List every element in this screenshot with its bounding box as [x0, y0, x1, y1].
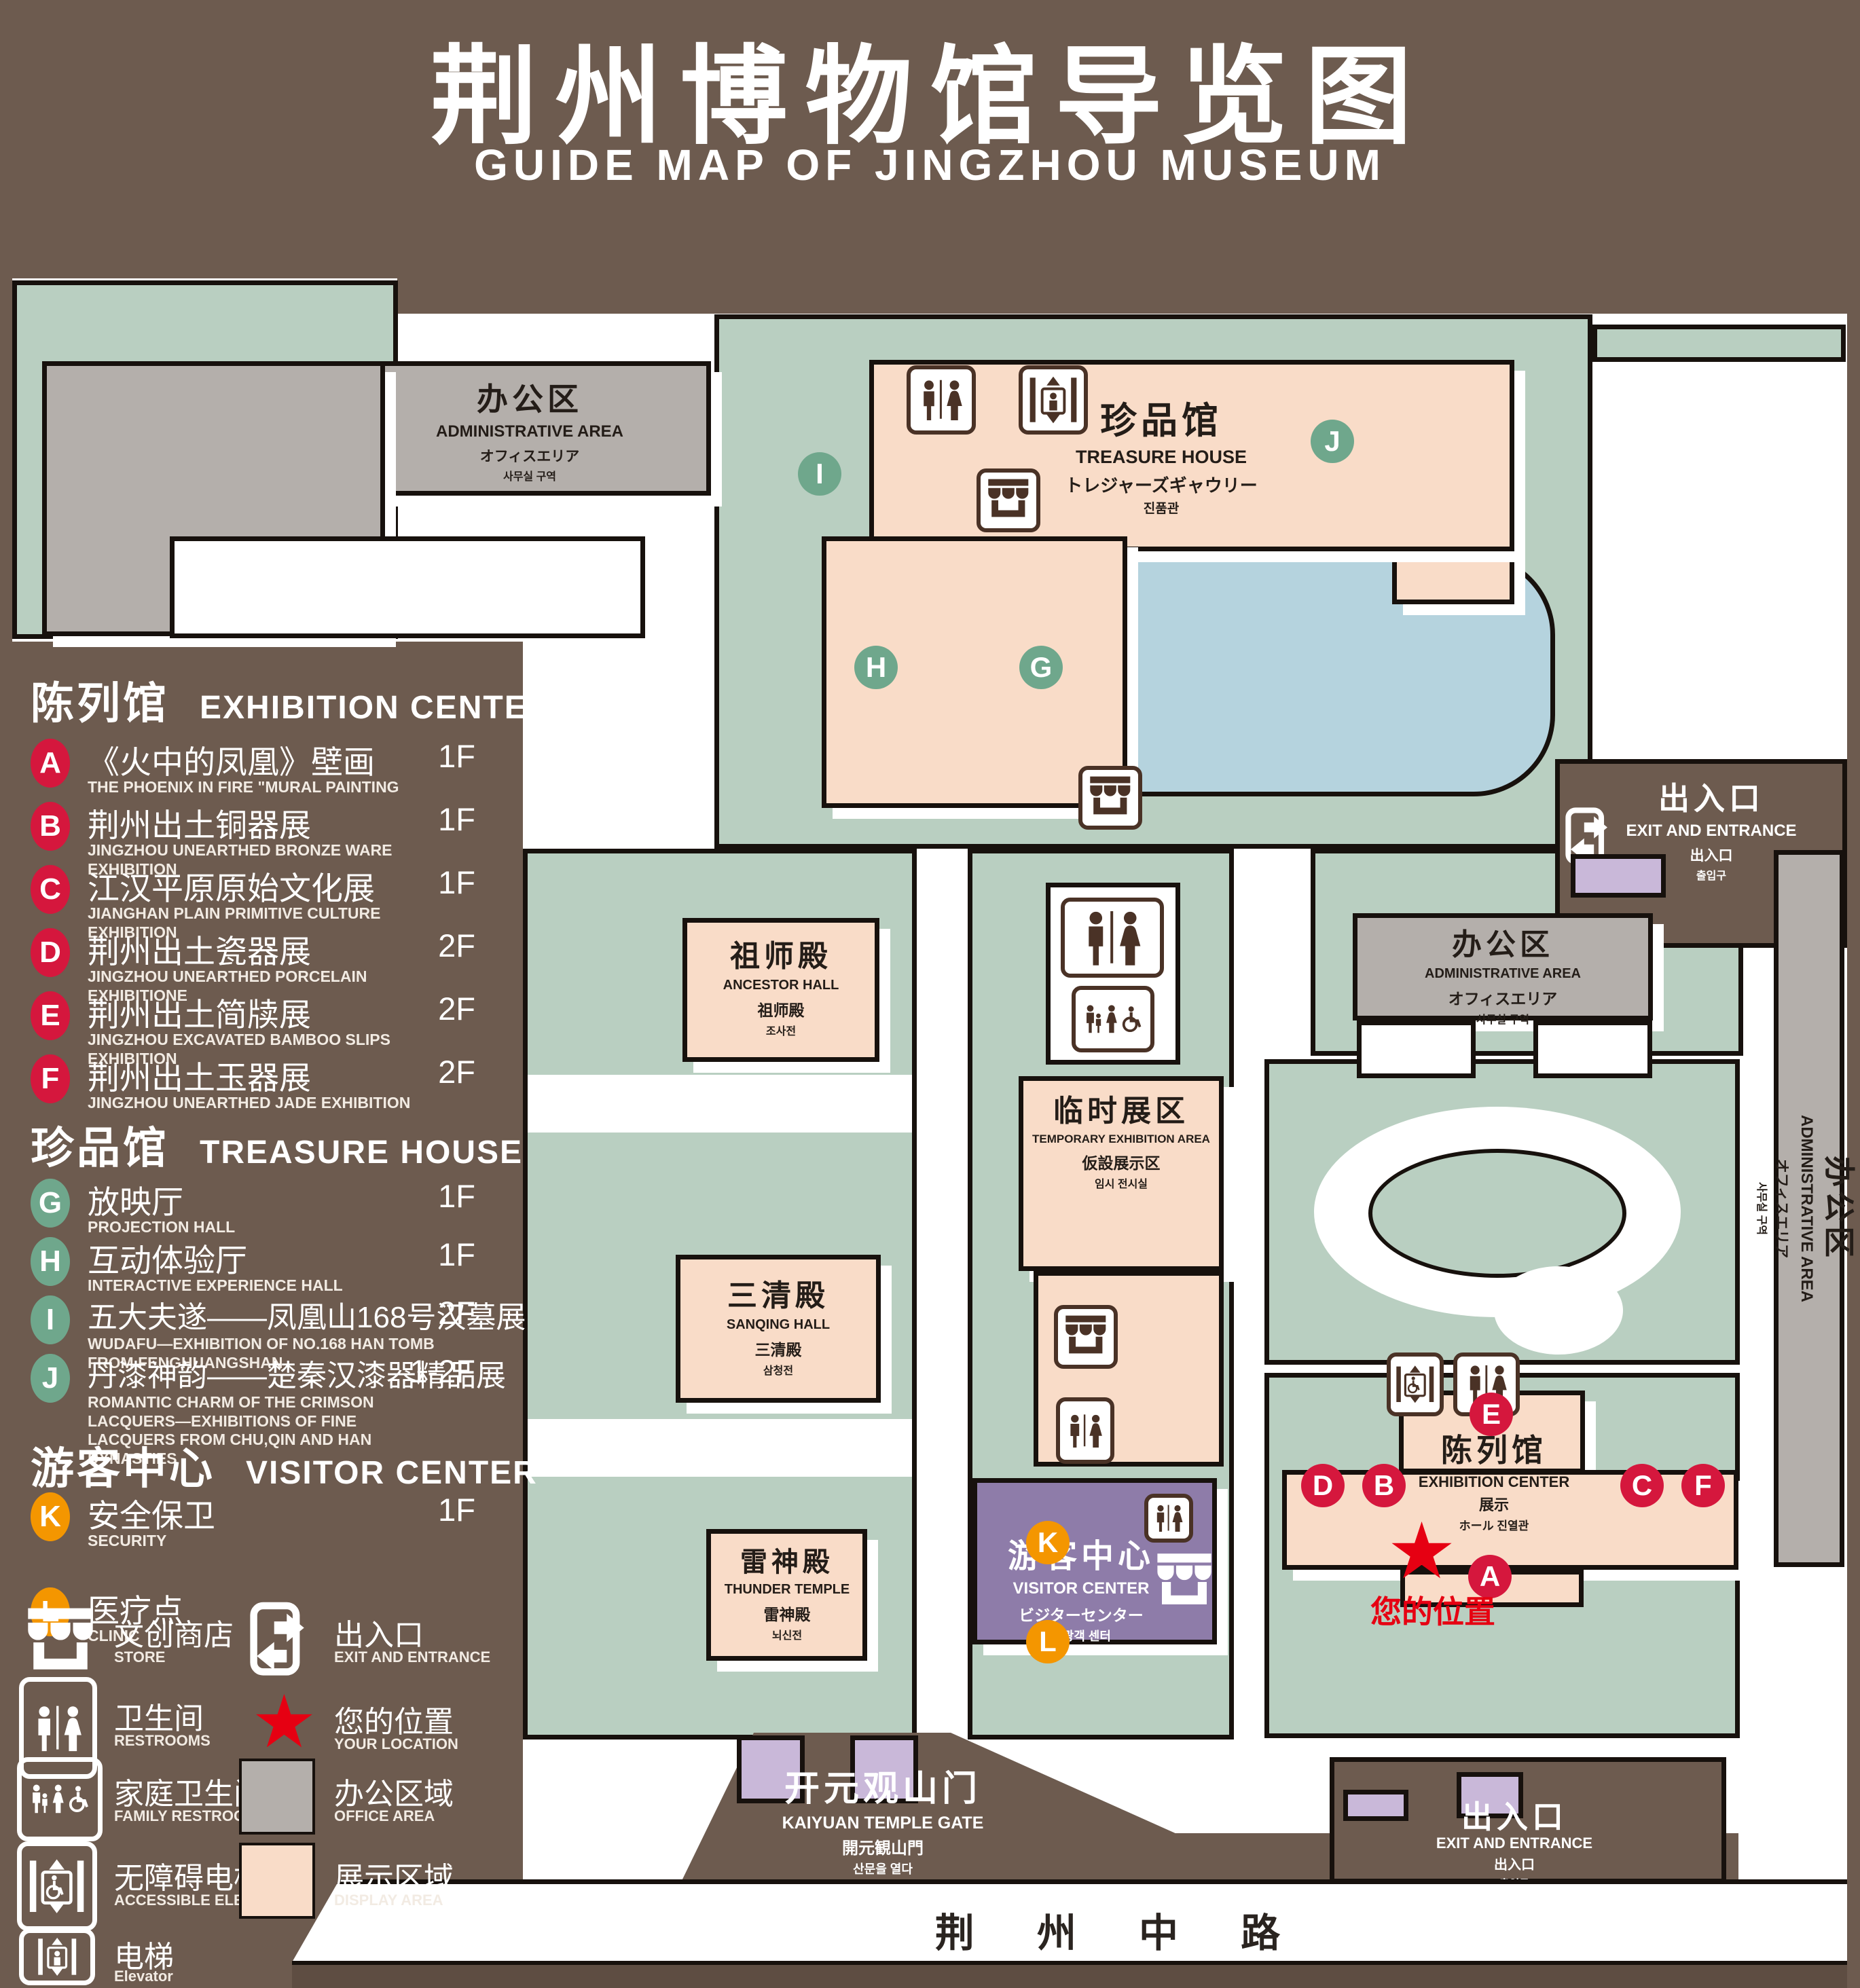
badge-K: K	[1026, 1521, 1070, 1564]
legend-item-J: J 丹漆神韵——楚秦汉漆器精品展 ROMANTIC CHARM OF THE C…	[31, 1354, 475, 1442]
badge-E: E	[1470, 1393, 1513, 1436]
label-admin-nw: 办公区 ADMINISTRATIVE AREA オフィスエリア 사무실 구역	[380, 375, 679, 483]
guide-map-canvas: 荆州博物馆导览图 GUIDE MAP OF JINGZHOU MUSEUM 办公…	[0, 0, 1860, 1988]
building-small-ne	[1571, 854, 1666, 898]
legend-item-B: B 荆州出土铜器展 JINGZHOU UNEARTHED BRONZE WARE…	[31, 802, 475, 870]
legend-section-exhibition-center: 陈列馆 EXHIBITION CENTER	[31, 669, 552, 731]
label-exit-south: 出入口 EXIT AND ENTRANCE 出入口 출입구	[1379, 1801, 1650, 1891]
badge-G: G	[31, 1179, 70, 1228]
page-subtitle: GUIDE MAP OF JINGZHOU MUSEUM	[0, 140, 1860, 190]
store-icon	[1078, 766, 1142, 830]
lawn-northeast-sliver	[1592, 325, 1846, 362]
legend-item-E: E 荆州出土简牍展 JINGZHOU EXCAVATED BAMBOO SLIP…	[31, 991, 475, 1059]
store-icon	[1154, 1552, 1214, 1612]
path-west-1	[528, 1075, 912, 1133]
family-restroom-icon	[1072, 986, 1154, 1052]
label-admin-strip: 办公区 ADMINISTRATIVE AREA オフィスエリア 사무실 구역	[1755, 1115, 1860, 1302]
badge-H: H	[854, 646, 898, 689]
badge-K: K	[31, 1492, 70, 1541]
office-area-swatch	[239, 1759, 315, 1835]
store-icon	[1054, 1305, 1118, 1369]
elevator-icon	[19, 1928, 95, 1985]
badge-J: J	[1311, 420, 1354, 463]
garden-path-blob	[1494, 1266, 1623, 1355]
legend-display-label: 展示区域	[334, 1854, 454, 1897]
badge-C: C	[1620, 1464, 1664, 1507]
path-west-2	[528, 1419, 912, 1477]
legend-office-label: 办公区域	[334, 1769, 454, 1813]
badge-E: E	[31, 991, 70, 1040]
badge-D: D	[1301, 1464, 1345, 1507]
label-sanqing-hall: 三清殿 SANQING HALL 三清殿 삼청전	[679, 1271, 877, 1378]
restrooms-icon	[907, 365, 976, 435]
legend-item-A: A 《火中的凤凰》壁画 THE PHOENIX IN FIRE "MURAL P…	[31, 739, 475, 807]
legend-item-K: K 安全保卫 SECURITY 1F	[31, 1492, 475, 1560]
legend-store-label: 文创商店	[114, 1610, 234, 1654]
restrooms-icon	[1061, 898, 1164, 978]
badge-J: J	[31, 1354, 70, 1403]
courtyard-admin-east-2	[1533, 1020, 1652, 1078]
badge-F: F	[1681, 1464, 1725, 1507]
your-location-star: ★	[251, 1685, 317, 1759]
display-area-swatch	[239, 1843, 315, 1919]
road-label: 荆 州 中 路	[815, 1901, 1426, 1958]
badge-I: I	[31, 1295, 70, 1344]
label-gate: 开元观山门 KAIYUAN TEMPLE GATE 開元観山門 산문을 열다	[706, 1760, 1059, 1877]
badge-B: B	[1362, 1464, 1406, 1507]
legend-section-visitor-center: 游客中心 VISITOR CENTER	[31, 1434, 538, 1496]
badge-G: G	[1019, 646, 1063, 689]
accessible-elevator-icon	[1387, 1352, 1444, 1416]
road-south-band	[292, 1961, 1847, 1988]
garden-island	[1368, 1149, 1626, 1278]
badge-I: I	[798, 452, 841, 496]
badge-L: L	[1026, 1620, 1070, 1663]
family-restroom-icon	[17, 1757, 103, 1841]
legend-item-C: C 江汉平原原始文化展 JIANGHAN PLAIN PRIMITIVE CUL…	[31, 865, 475, 933]
legend-restrooms-label: 卫生间	[114, 1694, 204, 1737]
label-admin-east: 办公区 ADMINISTRATIVE AREA オフィスエリア 사무실 구역	[1353, 920, 1652, 1027]
accessible-elevator-icon	[17, 1841, 97, 1931]
building-admin-strip: 办公区 ADMINISTRATIVE AREA オフィスエリア 사무실 구역	[1774, 850, 1844, 1567]
label-ancestor-hall: 祖师殿 ANCESTOR HALL 祖师殿 조사전	[686, 932, 876, 1038]
legend-exit-label: 出入口	[334, 1610, 424, 1654]
label-thunder-temple: 雷神殿 THUNDER TEMPLE 雷神殿 뇌신전	[709, 1540, 865, 1642]
label-temporary: 临时展区 TEMPORARY EXHIBITION AREA 仮設展示区 임시 …	[1020, 1086, 1222, 1191]
restrooms-icon	[1056, 1397, 1114, 1464]
store-icon	[20, 1606, 101, 1678]
store-icon	[977, 468, 1040, 532]
badge-A: A	[31, 739, 70, 788]
badge-D: D	[31, 928, 70, 977]
your-location-star: ★	[1387, 1513, 1457, 1591]
elevator-icon	[1019, 365, 1088, 435]
legend-section-treasure-house: 珍品馆 TREASURE HOUSE	[31, 1113, 523, 1176]
legend-location-label: 您的位置	[334, 1697, 454, 1741]
legend-item-D: D 荆州出土瓷器展 JINGZHOU UNEARTHED PORCELAIN E…	[31, 928, 475, 996]
badge-C: C	[31, 865, 70, 914]
badge-H: H	[31, 1237, 70, 1286]
courtyard-admin-nw	[170, 536, 645, 638]
courtyard-admin-east-1	[1357, 1020, 1476, 1078]
legend-item-F: F 荆州出土玉器展 JINGZHOU UNEARTHED JADE EXHIBI…	[31, 1054, 475, 1122]
exit-icon	[246, 1598, 315, 1682]
badge-F: F	[31, 1054, 70, 1103]
your-location-label: 您的位置	[1331, 1587, 1535, 1632]
badge-B: B	[31, 802, 70, 851]
label-visitor-center: 游客中心 VISITOR CENTER ビジターセンター 관광객 센터	[979, 1529, 1183, 1644]
